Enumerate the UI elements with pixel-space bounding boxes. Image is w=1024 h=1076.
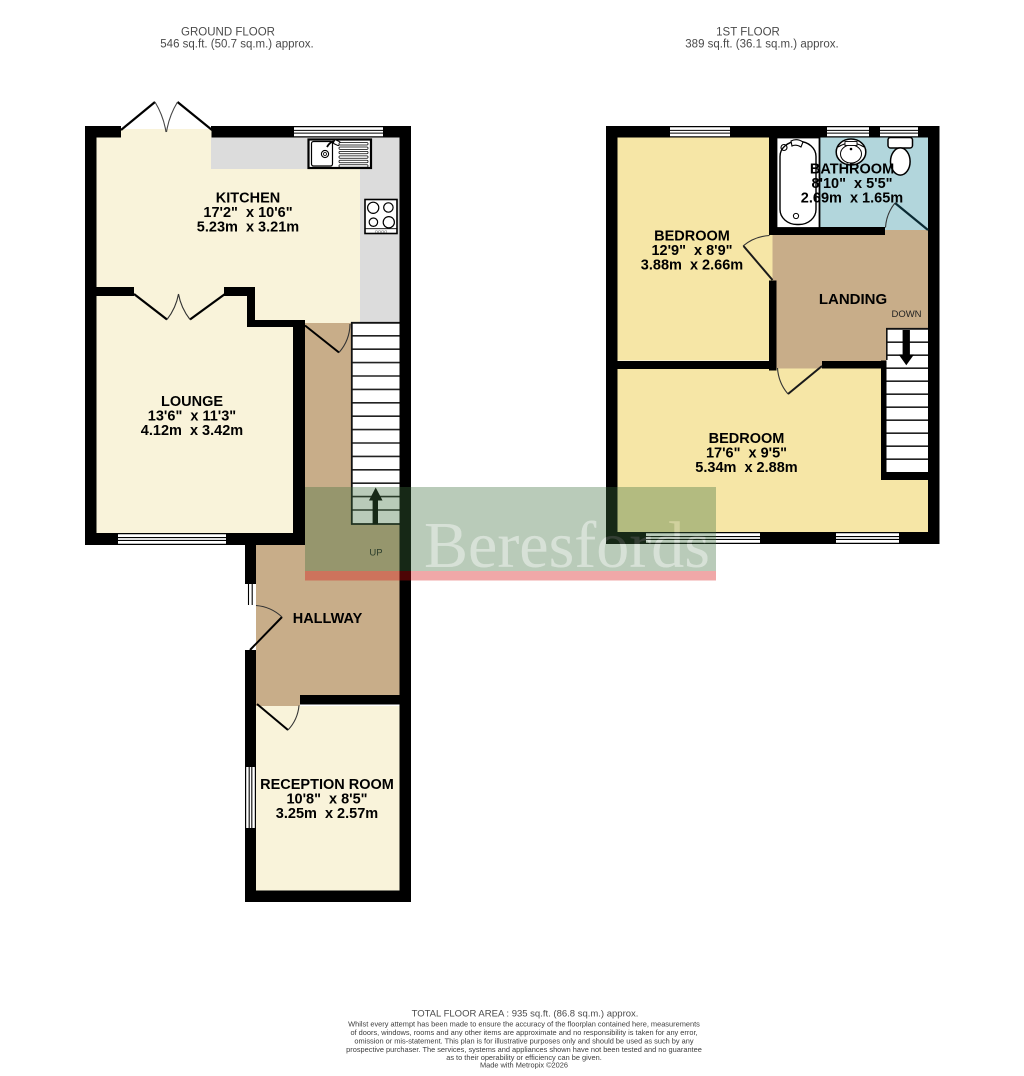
svg-text:5.23m x 3.21m: 5.23m x 3.21m <box>197 220 299 236</box>
svg-text:GROUND FLOOR: GROUND FLOOR <box>181 27 275 39</box>
svg-text:3.25m x 2.57m: 3.25m x 2.57m <box>276 806 378 822</box>
svg-text:2.69m x 1.65m: 2.69m x 1.65m <box>801 191 903 207</box>
svg-text:4.12m x 3.42m: 4.12m x 3.42m <box>141 423 243 439</box>
svg-text:LANDING: LANDING <box>819 291 887 308</box>
svg-text:DOWN: DOWN <box>891 309 921 320</box>
svg-text:389 sq.ft. (36.1 sq.m.) approx: 389 sq.ft. (36.1 sq.m.) approx. <box>685 38 838 50</box>
svg-text:5.34m x 2.88m: 5.34m x 2.88m <box>695 460 797 476</box>
svg-text:OOOO: OOOO <box>375 229 387 234</box>
svg-text:HALLWAY: HALLWAY <box>293 611 363 627</box>
svg-text:1ST FLOOR: 1ST FLOOR <box>716 27 780 39</box>
svg-text:Made with Metropix ©2026: Made with Metropix ©2026 <box>480 1061 568 1070</box>
svg-text:3.88m x 2.66m: 3.88m x 2.66m <box>641 258 743 274</box>
svg-text:TOTAL FLOOR AREA : 935 sq.ft.: TOTAL FLOOR AREA : 935 sq.ft. (86.8 sq.m… <box>412 1009 639 1020</box>
svg-text:546 sq.ft. (50.7 sq.m.) approx: 546 sq.ft. (50.7 sq.m.) approx. <box>160 38 313 50</box>
